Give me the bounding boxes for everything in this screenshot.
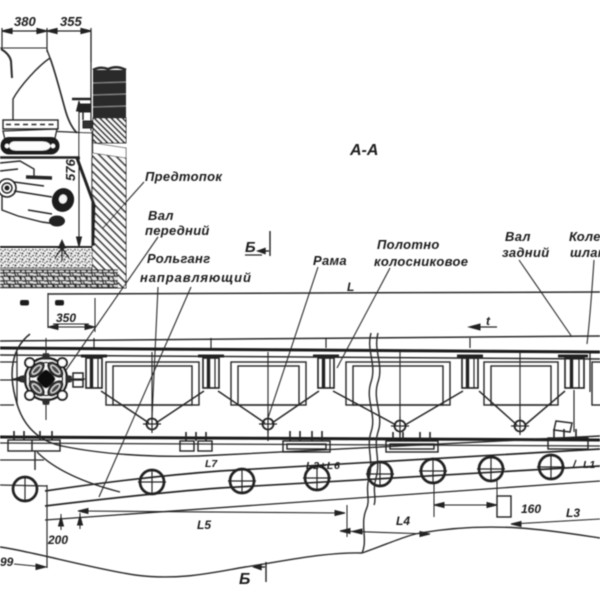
svg-text:передний: передний	[145, 223, 210, 238]
svg-text:направляющий: направляющий	[140, 270, 252, 285]
svg-text:L4: L4	[396, 514, 410, 528]
svg-text:шлаков: шлаков	[570, 245, 600, 260]
svg-text:355: 355	[60, 14, 82, 29]
svg-text:380: 380	[14, 14, 36, 29]
svg-text:Рама: Рама	[313, 253, 347, 268]
svg-text:Вал: Вал	[505, 229, 531, 244]
svg-text:задний: задний	[502, 245, 549, 260]
svg-text:Б: Б	[239, 571, 250, 588]
svg-text:колосниковое: колосниковое	[374, 254, 468, 269]
svg-text:L1: L1	[583, 459, 595, 471]
svg-text:160: 160	[521, 502, 541, 516]
svg-text:L5: L5	[197, 518, 211, 532]
svg-text:А-А: А-А	[349, 142, 378, 159]
svg-text:L2+L6: L2+L6	[306, 460, 341, 472]
svg-text:L: L	[347, 280, 354, 294]
svg-text:200: 200	[47, 533, 68, 547]
svg-text:576: 576	[63, 159, 78, 181]
svg-text:Колесо: Колесо	[569, 229, 600, 244]
svg-text:99: 99	[0, 555, 14, 569]
svg-text:t: t	[486, 314, 491, 328]
svg-text:Б: Б	[245, 239, 256, 256]
svg-text:Предтопок: Предтопок	[145, 169, 223, 184]
svg-text:L3: L3	[566, 506, 580, 520]
svg-text:Рольганг: Рольганг	[147, 251, 210, 266]
svg-text:350: 350	[56, 311, 76, 325]
svg-text:L7: L7	[205, 458, 218, 470]
svg-text:Вал: Вал	[148, 208, 174, 223]
svg-text:Полотно: Полотно	[377, 237, 440, 252]
